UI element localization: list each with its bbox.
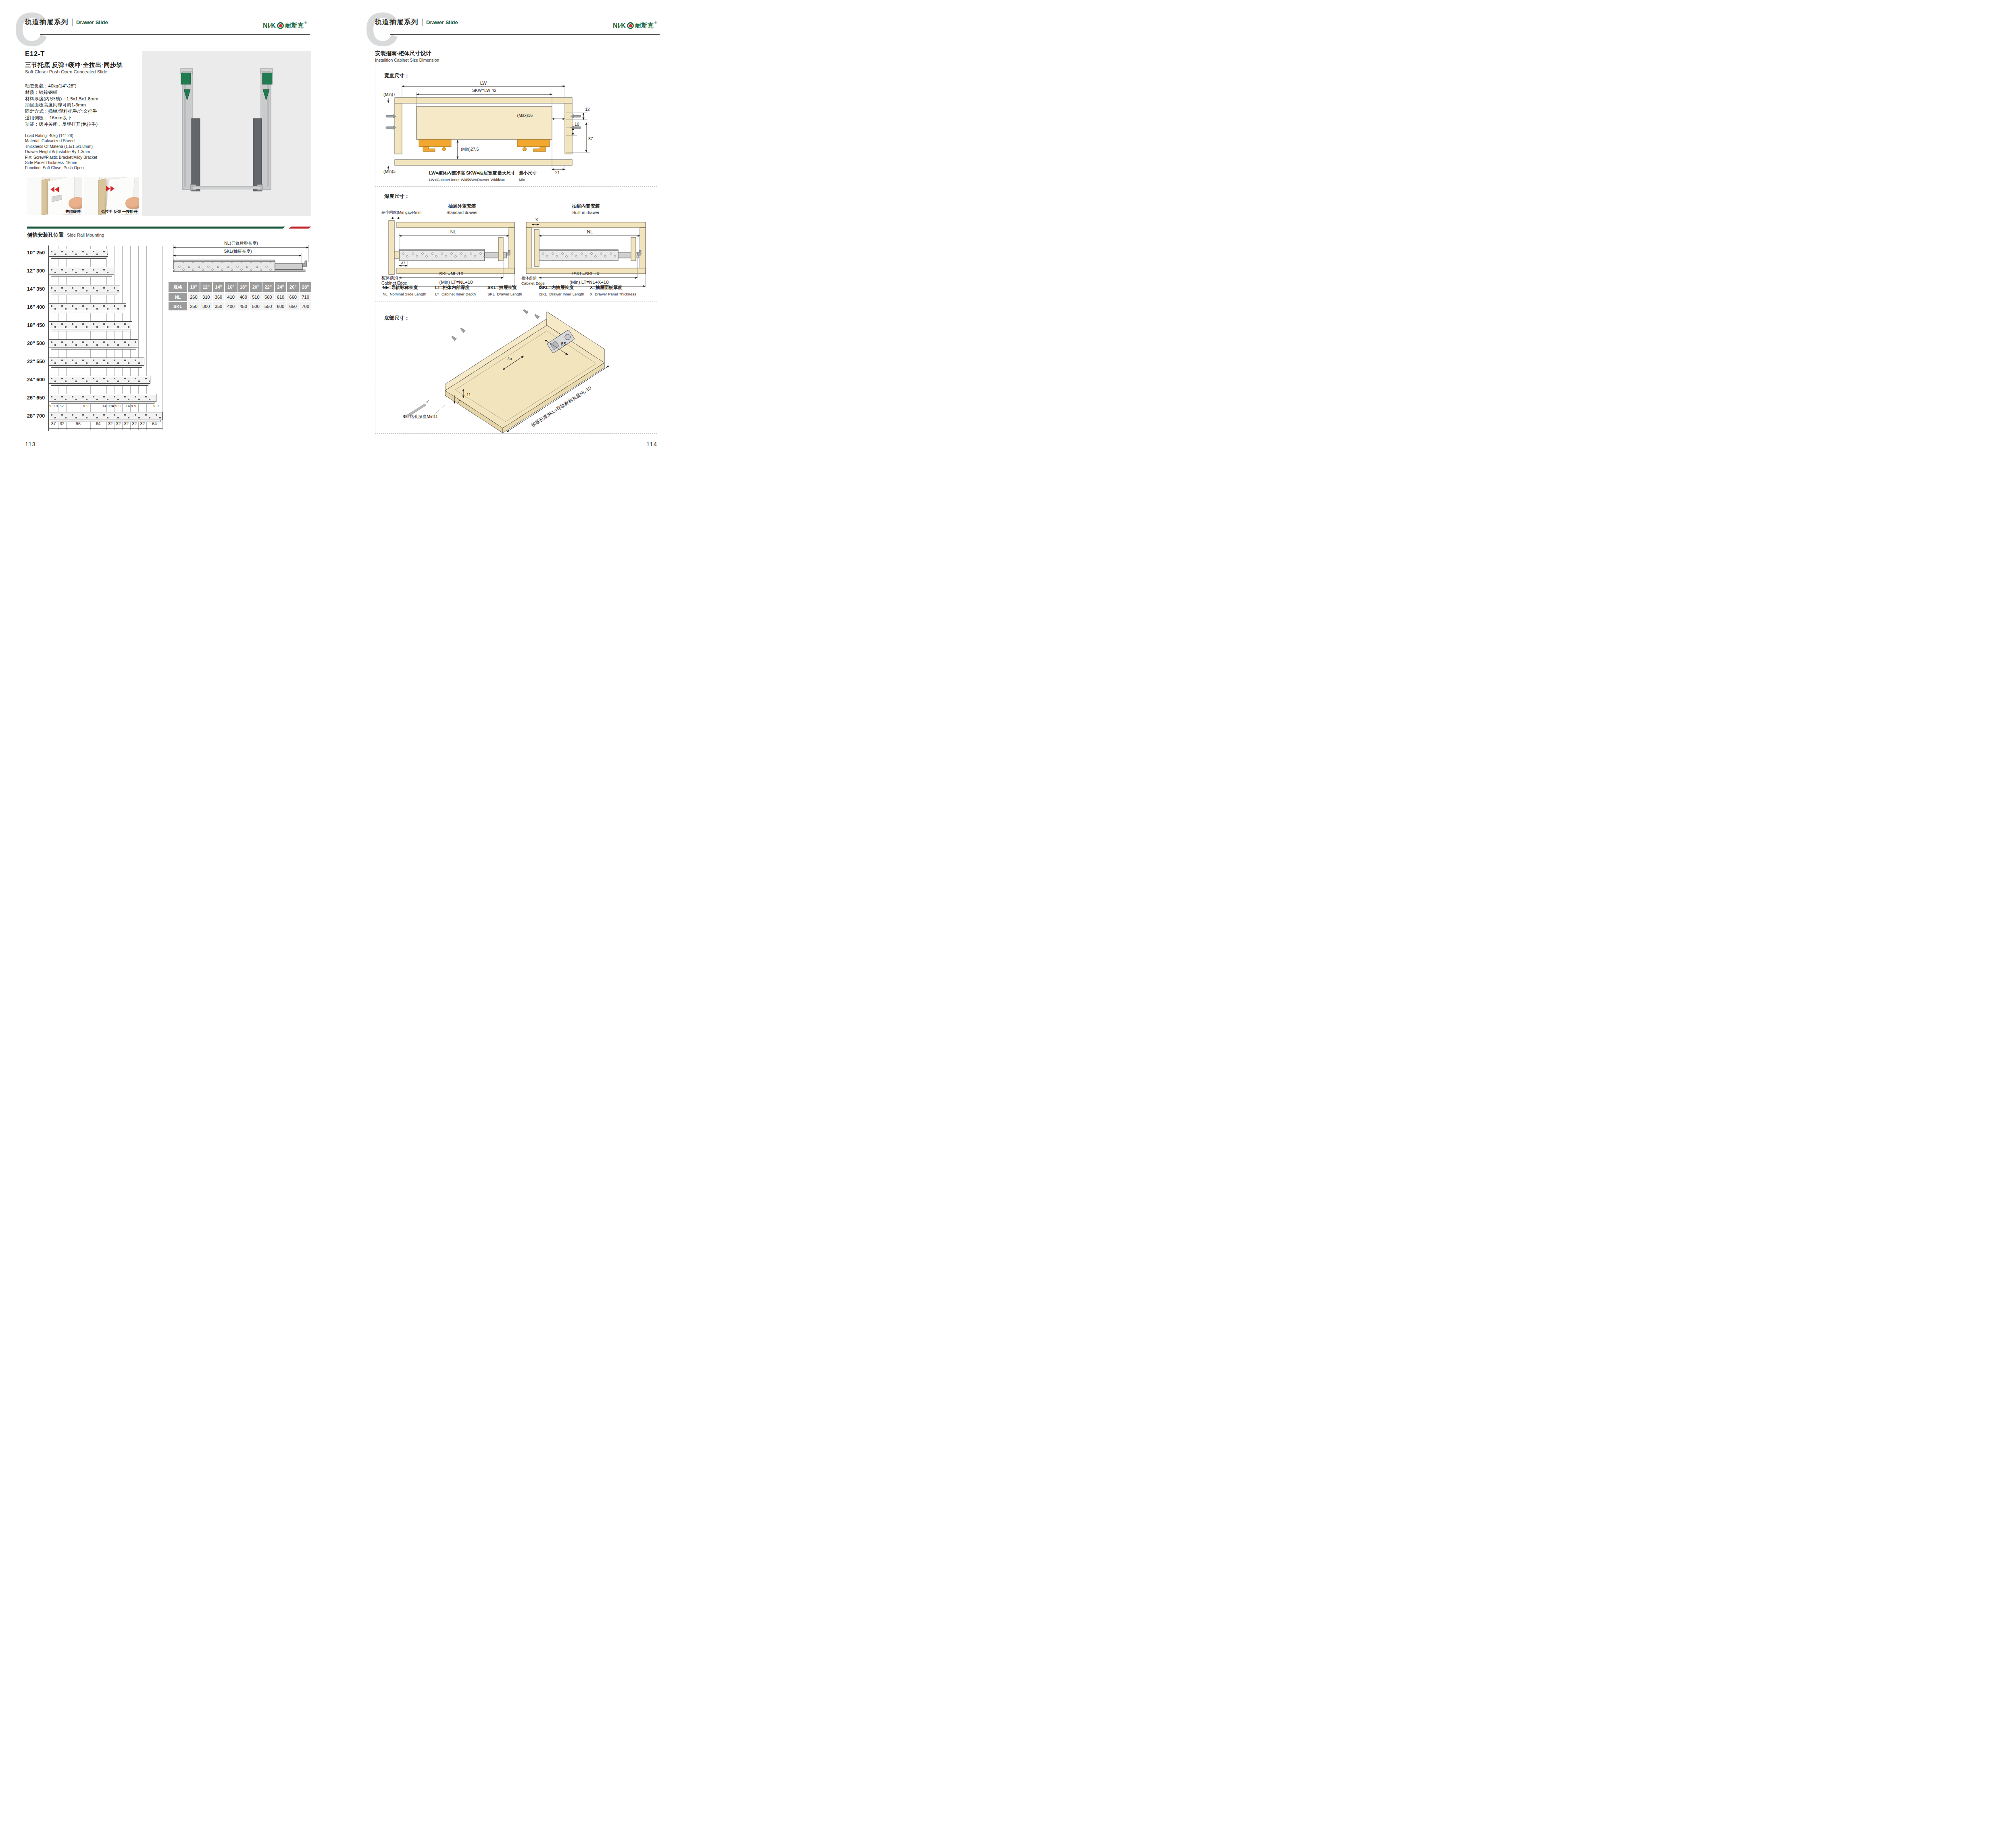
spec-en-line: Thickness Of Materia (1.5/1.5/1.8mm)	[25, 144, 97, 149]
cabinet-shape	[84, 177, 100, 215]
right-runner	[517, 139, 550, 152]
rail-size-label: 14" 350	[27, 286, 48, 292]
series-title-cn: 轨道抽屉系列	[25, 18, 69, 27]
side-rail-drawing	[49, 303, 126, 311]
table-value-cell: 250	[188, 302, 200, 310]
photo-caption: 免拉手 反弹 一按即开	[101, 209, 137, 214]
d7-dim-label: 7	[458, 399, 460, 404]
depth-box-title: 深度尺寸：	[384, 193, 410, 200]
drawer-back-post	[498, 237, 503, 261]
product-title-en: Soft Close+Push Open Concealed Slide	[25, 69, 107, 74]
legend-item: LW=柜体内部净高LW=Cabinet Inner Width	[429, 170, 471, 182]
legend-en: LW=Cabinet Inner Width	[429, 177, 471, 182]
section-divider-green	[27, 227, 285, 229]
spec-en-line: Drawer Height Adjustable By 1-3mm	[25, 149, 97, 154]
hole-pitch-dim: 37	[49, 421, 58, 426]
photo-push-open: 免拉手 反弹 一按即开	[84, 177, 139, 215]
close-arrow-icon	[50, 187, 54, 192]
hole-grid-line	[162, 246, 163, 430]
open-arrow-icon	[110, 186, 115, 191]
rail-size-label: 12" 300	[27, 268, 48, 274]
rail-hook	[302, 261, 307, 266]
legend-cn: SKL=抽屉长度	[487, 285, 522, 291]
inset-drawer-front	[534, 229, 539, 266]
drill-note-label: Φ6 钻孔深度Min11	[403, 414, 438, 419]
size-table: 规格10"12"14"16"18"20"22"24"26"28"NL260310…	[169, 282, 311, 310]
spec-en-line: Load Rating: 40kg (14"-28)	[25, 133, 97, 138]
table-value-cell: 260	[188, 293, 200, 301]
depth-legend: NL=导轨标称长度NL=Nominal Slide LengthLT=柜体内部深…	[375, 285, 658, 298]
cabinet-edge-cn: 柜体前沿	[381, 275, 398, 280]
width-box-title: 宽度尺寸：	[384, 73, 410, 79]
table-corner-header: 规格	[169, 282, 187, 292]
brand-o-icon	[277, 22, 284, 29]
product-model: E12-T	[25, 50, 45, 58]
legend-cn: 最小尺寸	[519, 170, 537, 176]
page-number-right: 114	[629, 441, 657, 447]
d37-dim-label: 37	[588, 136, 593, 141]
hole-pitch-dim: 32	[106, 421, 115, 426]
hole-pitch-dim-top: 32	[53, 404, 71, 408]
standard-title-en: Standard drawer	[446, 210, 478, 215]
rail-size-label: 20" 500	[27, 341, 48, 346]
mounting-title-cn: 侧轨安装孔位置	[27, 231, 64, 239]
table-value-cell: 350	[213, 302, 225, 310]
rail-size-label: 18" 450	[27, 322, 48, 328]
legend-item: X=抽屉面板厚度X=Drawer Panel Thickness	[590, 285, 636, 296]
header-divider-bar	[72, 19, 73, 26]
legend-cn: LW=柜体内部净高	[429, 170, 471, 176]
table-value-cell: 610	[275, 293, 287, 301]
open-arrow-icon	[106, 186, 110, 191]
slide-rail-drawing	[539, 249, 641, 261]
side-rail-inner-drawing	[51, 257, 106, 259]
spec-cn-line: 抽屉面板高度间隙可调1-3mm	[25, 102, 98, 108]
standard-title-cn: 抽屉外盖安装	[448, 203, 477, 208]
legend-cn: X=抽屉面板厚度	[590, 285, 636, 291]
drawer-back-post	[631, 237, 636, 261]
series-title-cn: 轨道抽屉系列	[375, 18, 419, 27]
hole-pitch-dim: 32	[138, 421, 146, 426]
hole-pitch-dim-top: 14 9 9	[122, 404, 140, 408]
table-row-label: SKL	[169, 302, 187, 310]
lw-dim-label: LW	[480, 81, 487, 85]
hole-pitch-dim: 32	[122, 421, 130, 426]
table-size-header: 26"	[287, 282, 299, 292]
side-rail-inner-drawing	[51, 366, 142, 368]
header-rule-right	[390, 34, 660, 35]
side-rail-drawing	[49, 376, 150, 384]
nl-dim-label: NL	[450, 229, 456, 234]
legend-en: SKL=Drawer Length	[487, 292, 522, 296]
depth-dimension-box: 深度尺寸： 抽屉外盖安装 Standard drawer 最小间隙(Min ga…	[375, 186, 657, 302]
spec-cn-line: 适用侧板： 16mm以下	[25, 115, 98, 121]
table-value-cell: 510	[250, 293, 262, 301]
rail-size-label: 22" 550	[27, 359, 48, 364]
side-rail-mounting-diagram: 10" 25012" 30014" 35016" 40018" 45020" 5…	[27, 244, 167, 434]
spec-cn-line: 功能：缓冲关闭，反弹打开(免拉手)	[25, 121, 98, 128]
table-value-cell: 450	[237, 302, 249, 310]
d85-dim-label: 85	[561, 341, 566, 346]
nl-dim-label: NL	[587, 229, 593, 234]
legend-item: SKW=抽屉宽度SKW=Drawer Width	[466, 170, 500, 182]
rail-size-label: 26" 650	[27, 395, 48, 401]
table-value-cell: 360	[213, 293, 225, 301]
page-number-left: 113	[25, 441, 36, 447]
hole-pitch-dim: 64	[146, 421, 162, 426]
spec-en-line: Side Panel Thickness: 16mm	[25, 160, 97, 165]
drawer-handle-shape	[52, 194, 62, 202]
hand-shape	[125, 197, 139, 209]
product-photo	[142, 51, 311, 216]
lt-dim-label: (Min) LT=NL+X+10	[569, 280, 608, 285]
side-rail-drawing	[49, 285, 120, 293]
bottom-dimension-diagram: 75 85 11 7 Φ6 钻孔深度Min11 抽屉长度SKL=导轨标称长度NL…	[403, 310, 645, 433]
cabinet-shape	[27, 177, 43, 215]
table-value-cell: 460	[237, 293, 249, 301]
iskl-dim-label: ISKL=SKL+X	[572, 271, 600, 276]
skw-dim-label: SKW=LW-42	[472, 88, 496, 93]
photo-caption: 关闭缓冲	[65, 209, 81, 214]
rail-size-label: 28" 700	[27, 413, 48, 419]
side-rail-inner-drawing	[51, 311, 124, 313]
builtin-drawer-diagram: 抽屉内置安装 Built-in drawer X NL	[521, 203, 650, 289]
page-header-left: 轨道抽屉系列 Drawer Slide	[25, 18, 108, 27]
cabinet-boards	[526, 222, 646, 274]
min275-dim-label: (Min)27.5	[461, 147, 479, 152]
hole-pitch-dim: 32	[130, 421, 138, 426]
install-guide-title-en: Installtion Cabinet Size Dimension	[375, 58, 439, 62]
width-dimension-box: 宽度尺寸：	[375, 66, 657, 182]
side-rail-inner-drawing	[51, 384, 148, 386]
table-value-cell: 650	[287, 302, 299, 310]
legend-item: SKL=抽屉长度SKL=Drawer Length	[487, 285, 522, 296]
photo-background	[142, 51, 311, 216]
table-size-header: 10"	[188, 282, 200, 292]
table-value-cell: 550	[262, 302, 274, 310]
side-rail-inner-drawing	[51, 329, 130, 331]
legend-en: Max	[498, 177, 515, 182]
side-rail-drawing	[49, 339, 138, 347]
drawer-back-panel	[417, 106, 552, 139]
brand-cn: 耐斯克	[635, 22, 653, 29]
hole-pitch-dim-top: 9 9	[77, 404, 95, 408]
hole-pitch-dim-top: 9 9	[147, 404, 165, 408]
spec-cn-line: 材料厚度(内/外轨)：1.5x1.5x1.8mm	[25, 96, 98, 102]
hole-pitch-dim: 32	[115, 421, 123, 426]
brand-reg-mark: ®	[654, 21, 657, 25]
d75-dim-label: 75	[507, 356, 512, 361]
hole-pitch-dim: 64	[90, 421, 106, 426]
legend-en: Min	[519, 177, 537, 182]
mounting-section-title: 侧轨安装孔位置 Side Rail Mounting	[27, 231, 104, 239]
table-size-header: 14"	[213, 282, 225, 292]
table-size-header: 24"	[275, 282, 287, 292]
brand-word: NI∕K	[613, 22, 626, 29]
cabinet-edge-cn: 柜体前沿	[521, 276, 537, 280]
rail-size-label: 16" 400	[27, 304, 48, 310]
table-size-header: 22"	[262, 282, 274, 292]
section-divider-red	[289, 227, 311, 229]
legend-item: 最小尺寸Min	[519, 170, 537, 182]
header-rule-left	[40, 34, 310, 35]
builtin-title-cn: 抽屉内置安装	[572, 204, 600, 208]
legend-cn: SKW=抽屉宽度	[466, 170, 500, 176]
brand-logo-left: NI∕K 耐斯克 ®	[263, 22, 307, 29]
side-rail-inner-drawing	[51, 347, 136, 349]
header-divider-bar	[422, 19, 423, 26]
table-row-label: NL	[169, 293, 187, 301]
chapter-watermark-right: C	[364, 6, 399, 53]
cabinet-boards	[389, 220, 514, 275]
d10-dim-label: 10	[575, 122, 579, 127]
legend-en: LT=Cabinet Inner Depth	[435, 292, 476, 296]
mounting-title-en: Side Rail Mounting	[67, 233, 104, 237]
legend-cn: ISKL=内抽屉长度	[539, 285, 584, 291]
hole-pitch-dim-top: 14 9 9	[106, 404, 124, 408]
rail-size-label: 24" 600	[27, 377, 48, 383]
brand-logo-right: NI∕K 耐斯克 ®	[613, 22, 657, 29]
nl-length-label: NL(导轨标称长度)	[224, 241, 258, 245]
table-value-cell: 700	[300, 302, 311, 310]
min-gap-label: 最小间隙(Min gap)4mm	[381, 210, 421, 214]
series-title-en: Drawer Slide	[76, 19, 108, 25]
brand-cn: 耐斯克	[285, 22, 303, 29]
left-runner	[419, 139, 451, 152]
side-rail-drawing	[49, 412, 162, 420]
spec-cn-line: 动态负载：40kg(14"-28")	[25, 83, 98, 89]
side-rail-drawing	[49, 267, 114, 275]
specs-en-block: Load Rating: 40kg (14"-28) Material: Gal…	[25, 133, 97, 171]
legend-cn: NL=导轨标称长度	[383, 285, 426, 291]
slide-rail-drawing	[173, 260, 307, 272]
table-value-cell: 300	[200, 302, 212, 310]
spec-en-line: Material: Galvanized Sheed	[25, 138, 97, 144]
spec-cn-line: 材质：镀锌钢板	[25, 89, 98, 96]
min7-dim-label: (Min)7	[383, 92, 396, 97]
side-rail-inner-drawing	[51, 293, 118, 295]
legend-en: ISKL=Drawer Inner Length	[539, 292, 584, 296]
legend-en: SKW=Drawer Width	[466, 177, 500, 182]
table-value-cell: 500	[250, 302, 262, 310]
legend-item: 最大尺寸Max	[498, 170, 515, 182]
dim-baseline	[49, 428, 162, 429]
side-rail-inner-drawing	[51, 275, 112, 277]
rail-size-label: 10" 250	[27, 250, 48, 256]
side-rail-drawing	[49, 358, 144, 366]
max16-dim-label: (Max)16	[517, 113, 533, 118]
slide-rail-drawing	[399, 249, 510, 261]
table-value-cell: 660	[287, 293, 299, 301]
table-size-header: 18"	[237, 282, 249, 292]
table-value-cell: 560	[262, 293, 274, 301]
bottom-dimension-box: 底部尺寸：	[375, 305, 657, 434]
catalog-spread: C 轨道抽屉系列 Drawer Slide NI∕K 耐斯克 ® E12-T 三…	[0, 0, 676, 462]
d11-dim-label: 11	[467, 392, 471, 397]
side-rail-drawing	[49, 394, 156, 402]
install-guide-title-cn: 安装指南-柜体尺寸设计	[375, 50, 431, 57]
x-dim-label: X	[535, 217, 538, 222]
brand-reg-mark: ®	[304, 21, 307, 25]
standard-drawer-diagram: 抽屉外盖安装 Standard drawer 最小间隙(Min gap)4mm …	[381, 203, 521, 289]
photo-soft-close: 关闭缓冲	[27, 177, 82, 215]
table-size-header: 16"	[225, 282, 237, 292]
table-value-cell: 710	[300, 293, 311, 301]
width-dimension-diagram: LW SKW=LW-42 (Min)7 (Max)16 12 10 37	[383, 81, 650, 168]
legend-item: ISKL=内抽屉长度ISKL=Drawer Inner Length	[539, 285, 584, 296]
d12-dim-label: 12	[585, 107, 590, 112]
close-arrow-icon	[55, 187, 59, 192]
hand-shape	[69, 197, 82, 209]
legend-item: NL=导轨标称长度NL=Nominal Slide Length	[383, 285, 426, 296]
specs-cn-block: 动态负载：40kg(14"-28") 材质：镀锌钢板 材料厚度(内/外轨)：1.…	[25, 83, 98, 128]
legend-cn: 最大尺寸	[498, 170, 515, 176]
width-legend: LW=柜体内部净高LW=Cabinet Inner WidthSKW=抽屉宽度S…	[375, 170, 658, 182]
builtin-title-en: Built-in drawer	[572, 210, 600, 215]
page-header-right: 轨道抽屉系列 Drawer Slide	[375, 18, 458, 27]
legend-cn: LT=柜体内部深度	[435, 285, 476, 291]
product-title-cn: 三节托底 反弹+缓冲·全拉出·同步轨	[25, 61, 123, 69]
table-value-cell: 310	[200, 293, 212, 301]
series-title-en: Drawer Slide	[426, 19, 458, 25]
side-rail-drawing	[49, 249, 108, 257]
hole-pitch-dim: 96	[66, 421, 90, 426]
front-attachment	[394, 251, 399, 258]
chapter-watermark-left: C	[14, 6, 48, 53]
spec-cn-line: 固定方式：插销/塑料把手/合金把手	[25, 108, 98, 115]
skl-length-label: SKL(抽屉长度)	[224, 249, 252, 254]
table-value-cell: 410	[225, 293, 237, 301]
table-size-header: 28"	[300, 282, 311, 292]
drawer-bottom-iso	[445, 312, 604, 433]
side-rail-drawing	[49, 321, 132, 329]
brand-o-icon	[627, 22, 634, 29]
d37-dim-label: 37	[401, 260, 406, 265]
table-value-cell: 600	[275, 302, 287, 310]
spec-en-line: FIX: Screw/Plastic Bracket/Alloy Bracket	[25, 155, 97, 160]
legend-item: LT=柜体内部深度LT=Cabinet Inner Depth	[435, 285, 476, 296]
legend-en: X=Drawer Panel Thickness	[590, 292, 636, 296]
legend-en: NL=Nominal Slide Length	[383, 292, 426, 296]
skl-dim-label: SKL=NL-10	[439, 271, 463, 276]
brand-word: NI∕K	[263, 22, 276, 29]
hole-pitch-dim: 32	[58, 421, 66, 426]
table-size-header: 12"	[200, 282, 212, 292]
table-size-header: 20"	[250, 282, 262, 292]
spec-en-line: Function: Soft Close, Push Open	[25, 165, 97, 171]
table-value-cell: 400	[225, 302, 237, 310]
lt-dim-label: (Min) LT=NL+10	[439, 280, 473, 285]
slide-length-diagram: NL(导轨标称长度) SKL(抽屉长度)	[167, 240, 311, 281]
